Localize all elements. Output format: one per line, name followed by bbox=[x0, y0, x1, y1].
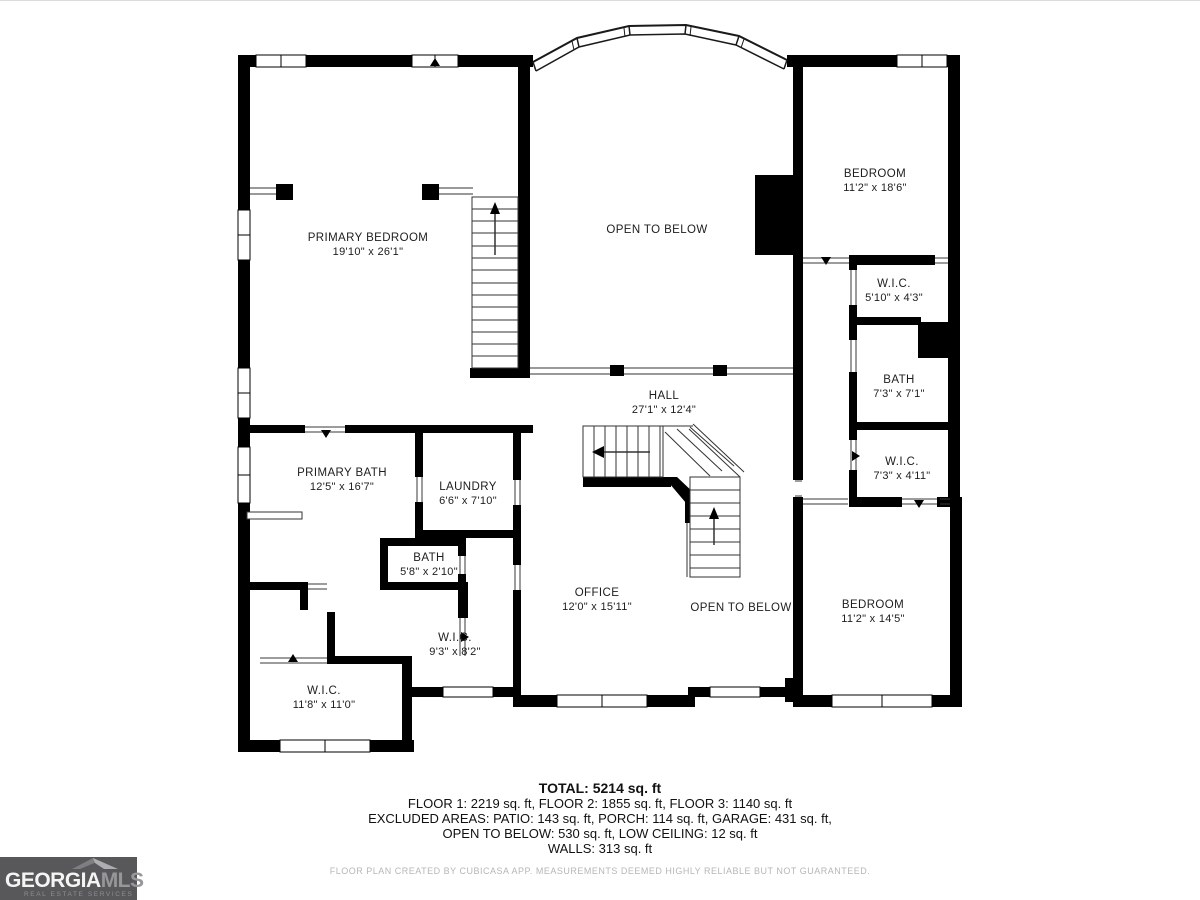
logo-georgia: GEORGIA bbox=[5, 869, 101, 892]
wall-post bbox=[276, 184, 293, 200]
area-summary: TOTAL: 5214 sq. ft FLOOR 1: 2219 sq. ft,… bbox=[0, 781, 1200, 856]
bow-window-arch bbox=[533, 25, 787, 71]
window bbox=[238, 210, 250, 260]
total-area: TOTAL: 5214 sq. ft bbox=[0, 781, 1200, 796]
window bbox=[280, 740, 370, 752]
chimney-block bbox=[755, 175, 795, 255]
window bbox=[238, 447, 250, 503]
disclaimer-text: FLOOR PLAN CREATED BY CUBICASA APP. MEAS… bbox=[0, 866, 1200, 876]
staircase-upper-left bbox=[472, 197, 518, 368]
window bbox=[256, 55, 306, 67]
window bbox=[443, 687, 493, 697]
shelf bbox=[247, 512, 302, 519]
logo-brand: GEORGIAMLS bbox=[5, 870, 144, 891]
walls-line: WALLS: 313 sq. ft bbox=[0, 841, 1200, 856]
georgia-mls-logo: GEORGIAMLS REAL ESTATE SERVICES bbox=[0, 857, 137, 900]
window bbox=[897, 55, 947, 67]
floorplan-page: PRIMARY BEDROOM19'10" x 26'1"OPEN TO BEL… bbox=[0, 0, 1200, 900]
utility-block bbox=[918, 322, 960, 358]
window bbox=[710, 687, 760, 697]
staircase-hall bbox=[583, 424, 744, 577]
excluded-line-1: EXCLUDED AREAS: PATIO: 143 sq. ft, PORCH… bbox=[0, 811, 1200, 826]
window bbox=[557, 695, 647, 707]
excluded-line-2: OPEN TO BELOW: 530 sq. ft, LOW CEILING: … bbox=[0, 826, 1200, 841]
floorplan-drawing bbox=[0, 0, 1200, 900]
wall-post bbox=[422, 184, 439, 200]
window bbox=[238, 368, 250, 418]
floors-line: FLOOR 1: 2219 sq. ft, FLOOR 2: 1855 sq. … bbox=[0, 796, 1200, 811]
logo-tagline: REAL ESTATE SERVICES bbox=[24, 891, 133, 898]
logo-mls: MLS bbox=[101, 869, 144, 892]
fixtures bbox=[247, 512, 302, 519]
windows bbox=[238, 55, 947, 752]
window bbox=[832, 695, 932, 707]
walls bbox=[238, 55, 962, 752]
